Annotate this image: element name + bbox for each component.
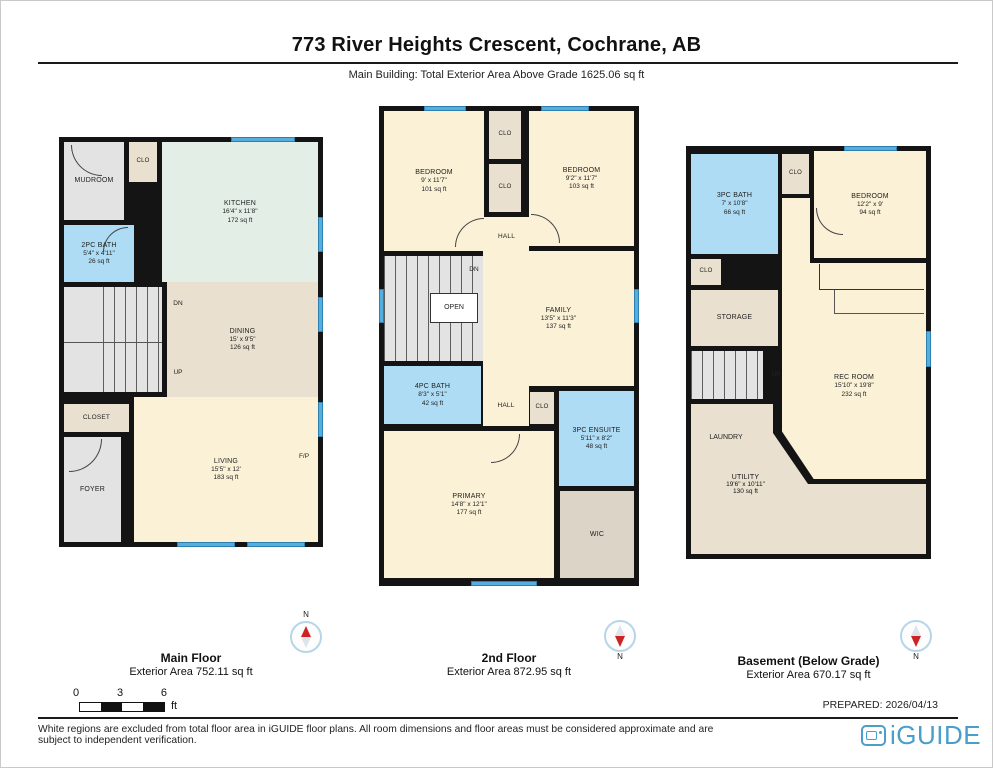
room-dims: 16'4" x 11'8" xyxy=(222,208,257,216)
compass-north-label: N xyxy=(289,611,323,620)
room-label: CLO xyxy=(499,131,512,139)
window xyxy=(379,289,384,323)
room-area: 103 sq ft xyxy=(569,183,594,191)
brand-name: iGUIDE xyxy=(890,720,981,751)
room-closet-foyer: CLOSET xyxy=(64,404,129,432)
scale-tick: 6 xyxy=(161,687,167,699)
compass-rose xyxy=(604,620,636,652)
prepared-date: PREPARED: 2026/04/13 xyxy=(691,699,938,711)
room-label: CLOSET xyxy=(83,414,110,422)
room-area: 183 sq ft xyxy=(214,474,239,482)
floor-name: 2nd Floor xyxy=(379,651,639,665)
caption-main-floor: Main Floor Exterior Area 752.11 sq ft xyxy=(59,651,323,678)
disclaimer-text: White regions are excluded from total fl… xyxy=(38,724,738,746)
compass-needle-north-icon xyxy=(301,626,311,637)
floor-area: Exterior Area 670.17 sq ft xyxy=(686,669,931,681)
scale-bar-ticks: 0 3 6 xyxy=(73,687,167,699)
footer-divider xyxy=(38,717,958,719)
room-label: FAMILY xyxy=(546,306,572,315)
stair-landing-line xyxy=(64,342,162,343)
compass-rose xyxy=(290,621,322,653)
rec-room-label-block: REC ROOM 15'10" x 19'8" 232 sq ft xyxy=(792,373,916,399)
room-label: STORAGE xyxy=(717,313,753,322)
window xyxy=(541,106,589,111)
room-label: CLO xyxy=(536,404,549,412)
room-area: 42 sq ft xyxy=(422,400,443,408)
compass-needle-north-icon xyxy=(911,636,921,647)
room-label: 3PC BATH xyxy=(717,191,752,200)
room-4pc-bath: 4PC BATH 8'3" x 5'1" 42 sq ft xyxy=(384,366,481,424)
camera-lens-icon xyxy=(879,731,882,734)
header-divider xyxy=(38,62,958,64)
room-dims: 5'11" x 8'2" xyxy=(581,435,613,443)
stair-treads xyxy=(103,287,162,392)
compass-rose xyxy=(900,620,932,652)
room-dims: 7' x 10'8" xyxy=(721,200,747,208)
scale-segment xyxy=(80,703,101,711)
room-label: FOYER xyxy=(80,485,105,494)
room-family: FAMILY 13'5" x 11'3" 137 sq ft xyxy=(483,251,634,386)
room-label: BEDROOM xyxy=(563,166,601,175)
fireplace-label: F/P xyxy=(291,453,317,460)
room-3pc-bath: 3PC BATH 7' x 10'8" 66 sq ft xyxy=(691,154,778,254)
room-closet: CLO xyxy=(782,154,809,194)
stair-open-box: OPEN xyxy=(430,293,478,323)
stair-up-label: UP xyxy=(163,369,193,376)
room-hall-lower: HALL xyxy=(483,386,529,426)
room-label: WIC xyxy=(590,530,604,539)
compass-needle-south-icon xyxy=(911,625,921,636)
bulkhead-outline xyxy=(834,290,924,314)
window xyxy=(844,146,897,151)
stair-up-label: UP xyxy=(764,371,788,378)
scale-segment xyxy=(143,703,164,711)
room-area: 101 sq ft xyxy=(422,186,447,194)
room-living: LIVING 15'5" x 12' 183 sq ft xyxy=(134,397,318,542)
floor-plan-main: MUDROOM CLO KITCHEN 16'4" x 11'8" 172 sq… xyxy=(59,137,323,547)
room-label: CLO xyxy=(137,158,150,166)
room-storage: STORAGE xyxy=(691,290,778,346)
room-area: 94 sq ft xyxy=(859,209,880,217)
room-area: 26 sq ft xyxy=(88,258,109,266)
room-area: 177 sq ft xyxy=(457,509,482,517)
room-label: CLO xyxy=(700,268,713,276)
bulkhead-outline xyxy=(819,264,924,290)
room-dims: 15' x 9'5" xyxy=(229,336,255,344)
room-label: 4PC BATH xyxy=(415,382,450,391)
room-dims: 15'10" x 19'8" xyxy=(792,382,916,390)
stair-dn-label: DN xyxy=(163,300,193,307)
window xyxy=(318,217,323,252)
laundry-label: LAUNDRY xyxy=(691,434,761,441)
room-3pc-ensuite: 3PC ENSUITE 5'11" x 8'2" 48 sq ft xyxy=(559,391,634,486)
window xyxy=(634,289,639,323)
page-title: 773 River Heights Crescent, Cochrane, AB xyxy=(1,34,992,57)
room-closet: CLO xyxy=(129,142,157,182)
room-kitchen: KITCHEN 16'4" x 11'8" 172 sq ft xyxy=(162,142,318,282)
room-area: 126 sq ft xyxy=(230,344,255,352)
scale-segment xyxy=(122,703,143,711)
compass-main-floor: N xyxy=(289,611,323,654)
room-area: 232 sq ft xyxy=(792,391,916,399)
room-area: 137 sq ft xyxy=(546,323,571,331)
stair-treads xyxy=(691,351,763,399)
room-label: HALL xyxy=(497,402,514,410)
room-dims: 9' x 11'7" xyxy=(421,177,447,185)
floor-area: Exterior Area 752.11 sq ft xyxy=(59,666,323,678)
room-dims: 14'8" x 12'1" xyxy=(451,501,487,509)
room-label: DINING xyxy=(230,327,256,336)
window xyxy=(424,106,466,111)
room-closet: CLO xyxy=(530,392,554,424)
room-dims: 13'5" x 11'3" xyxy=(541,315,576,323)
utility-label-block: UTILITY 19'6" x 10'11" 130 sq ft xyxy=(698,474,793,495)
floor-area: Exterior Area 872.95 sq ft xyxy=(379,666,639,678)
scale-segment xyxy=(101,703,122,711)
stairs-up xyxy=(691,351,763,399)
room-dims: 19'6" x 10'11" xyxy=(698,481,793,488)
room-label: BEDROOM xyxy=(851,192,889,201)
room-label: REC ROOM xyxy=(792,373,916,382)
window xyxy=(247,542,305,547)
scale-tick: 3 xyxy=(117,687,123,699)
compass-needle-south-icon xyxy=(615,625,625,636)
scale-bar xyxy=(79,702,165,712)
stairs-down xyxy=(64,287,162,392)
room-primary: PRIMARY 14'8" x 12'1" 177 sq ft xyxy=(384,431,554,578)
open-label: OPEN xyxy=(444,303,464,312)
room-dims: 12'2" x 9' xyxy=(857,201,883,209)
caption-2nd-floor: 2nd Floor Exterior Area 872.95 sq ft xyxy=(379,651,639,678)
window xyxy=(471,581,537,586)
scale-tick: 0 xyxy=(73,687,79,699)
rec-room-hall-strip xyxy=(782,198,810,266)
camera-body-icon xyxy=(866,731,877,740)
room-label: CLO xyxy=(789,170,802,178)
iguide-logo: iGUIDE xyxy=(861,720,981,751)
room-dims: 15'5" x 12' xyxy=(211,466,241,474)
room-label: CLO xyxy=(499,184,512,192)
room-label: KITCHEN xyxy=(224,199,256,208)
stair-dn-label: DN xyxy=(461,266,487,273)
floor-plan-2nd: BEDROOM 9' x 11'7" 101 sq ft CLO CLO BED… xyxy=(379,106,639,586)
page-subtitle: Main Building: Total Exterior Area Above… xyxy=(1,69,992,81)
window xyxy=(318,402,323,437)
room-label: UTILITY xyxy=(698,474,793,481)
window xyxy=(926,331,931,367)
compass-needle-south-icon xyxy=(301,637,311,648)
room-area: 130 sq ft xyxy=(698,488,793,495)
room-label: LIVING xyxy=(214,457,238,466)
room-label: 3PC ENSUITE xyxy=(572,426,620,435)
window xyxy=(231,137,295,142)
compass-needle-north-icon xyxy=(615,636,625,647)
camera-icon xyxy=(861,725,886,746)
floor-name: Main Floor xyxy=(59,651,323,665)
room-area: 48 sq ft xyxy=(586,443,607,451)
floor-plan-basement: 3PC BATH 7' x 10'8" 66 sq ft CLO BEDROOM… xyxy=(686,146,931,559)
room-dims: 9'2" x 11'7" xyxy=(566,175,598,183)
room-area: 66 sq ft xyxy=(724,209,745,217)
window xyxy=(177,542,235,547)
room-closet: CLO xyxy=(489,111,521,159)
room-label: HALL xyxy=(498,233,515,241)
room-dims: 8'3" x 5'1" xyxy=(418,391,446,399)
room-area: 172 sq ft xyxy=(228,217,253,225)
floor-name: Basement (Below Grade) xyxy=(686,654,931,668)
room-label: MUDROOM xyxy=(74,176,113,185)
caption-basement: Basement (Below Grade) Exterior Area 670… xyxy=(686,654,931,681)
room-closet: CLO xyxy=(489,164,521,212)
room-wic: WIC xyxy=(560,491,634,578)
room-label: BEDROOM xyxy=(415,168,453,177)
room-label: PRIMARY xyxy=(452,492,485,501)
window xyxy=(318,297,323,332)
floor-plan-sheet: 773 River Heights Crescent, Cochrane, AB… xyxy=(0,0,993,768)
scale-unit-label: ft xyxy=(171,700,177,712)
room-closet: CLO xyxy=(691,259,721,285)
room-bedroom: BEDROOM 12'2" x 9' 94 sq ft xyxy=(814,151,926,258)
